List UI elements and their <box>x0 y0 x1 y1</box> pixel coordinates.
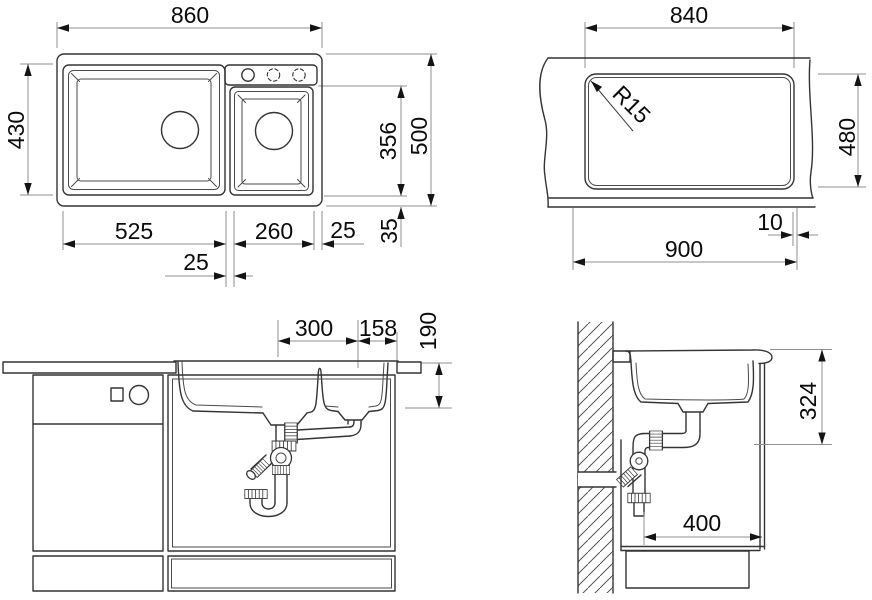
dim-label-158: 158 <box>359 315 397 341</box>
dim-label-430: 430 <box>3 111 29 149</box>
dim-label-525: 525 <box>115 218 153 244</box>
sink-drawing-canvas: 860 430 525 25 260 25 356 500 35 <box>0 0 872 600</box>
dim-label-260: 260 <box>255 218 293 244</box>
dim-label-r15: R15 <box>608 80 656 128</box>
sink-cabinet <box>168 375 395 591</box>
sink-outer-rim <box>57 54 322 206</box>
half-bowl <box>230 87 313 195</box>
main-bowl <box>63 65 225 195</box>
tap-hole-optional <box>267 69 279 81</box>
dim-label-500: 500 <box>406 117 432 155</box>
countertop-right-edge <box>809 60 813 198</box>
side-plinth <box>626 551 749 588</box>
cutout-dimension-arrows <box>573 24 862 265</box>
wall-section <box>578 322 613 593</box>
sink-top-outline <box>57 54 322 206</box>
technical-drawing-page: 860 430 525 25 260 25 356 500 35 <box>0 0 872 600</box>
countertop-break-line <box>540 58 548 207</box>
view-side-section: 324 400 <box>578 322 832 593</box>
dim-label-190: 190 <box>415 312 441 350</box>
dim-label-324: 324 <box>795 382 821 421</box>
cutout-extension-lines <box>573 22 866 270</box>
view-front-section: 300 158 190 <box>3 312 452 591</box>
countertop-with-cutout <box>540 58 815 207</box>
dim-label-900: 900 <box>665 236 703 262</box>
dim-label-840: 840 <box>670 2 708 28</box>
dim-label-35: 35 <box>376 218 402 244</box>
tap-ledge <box>225 65 317 85</box>
sink-cabinet-plinth <box>168 556 395 591</box>
wall-outlet-gap <box>578 472 616 487</box>
tap-hole <box>242 69 254 81</box>
cabinet-button <box>111 388 123 401</box>
dim-label-25-right: 25 <box>330 217 356 243</box>
view-cutout-plan: 840 480 900 10 R15 <box>540 2 866 270</box>
side-drain-flange <box>678 404 708 413</box>
side-dimension-arrows <box>644 350 826 541</box>
dim-label-10: 10 <box>757 209 783 235</box>
half-drain-flange <box>338 412 369 421</box>
cabinet-knob <box>130 386 149 405</box>
dim-label-25-divider: 25 <box>183 249 209 275</box>
shutoff-knob <box>630 452 648 470</box>
countertop-front-edge <box>548 198 815 207</box>
half-bowl-drain <box>256 113 293 150</box>
dim-label-300: 300 <box>295 315 333 341</box>
left-cabinet-plinth <box>33 556 163 591</box>
dim-label-356: 356 <box>375 122 401 160</box>
dim-label-860: 860 <box>171 2 209 28</box>
view-top-plan: 860 430 525 25 260 25 356 500 35 <box>3 2 437 287</box>
main-bowl-drain <box>162 112 199 149</box>
sink-side-section <box>626 350 772 431</box>
left-cabinet <box>33 375 163 591</box>
dim-label-400: 400 <box>683 510 721 536</box>
sink-front-section <box>174 361 398 517</box>
dim-label-480: 480 <box>834 118 860 156</box>
countertop-side-section <box>613 351 630 362</box>
tap-hole-optional <box>293 69 305 81</box>
